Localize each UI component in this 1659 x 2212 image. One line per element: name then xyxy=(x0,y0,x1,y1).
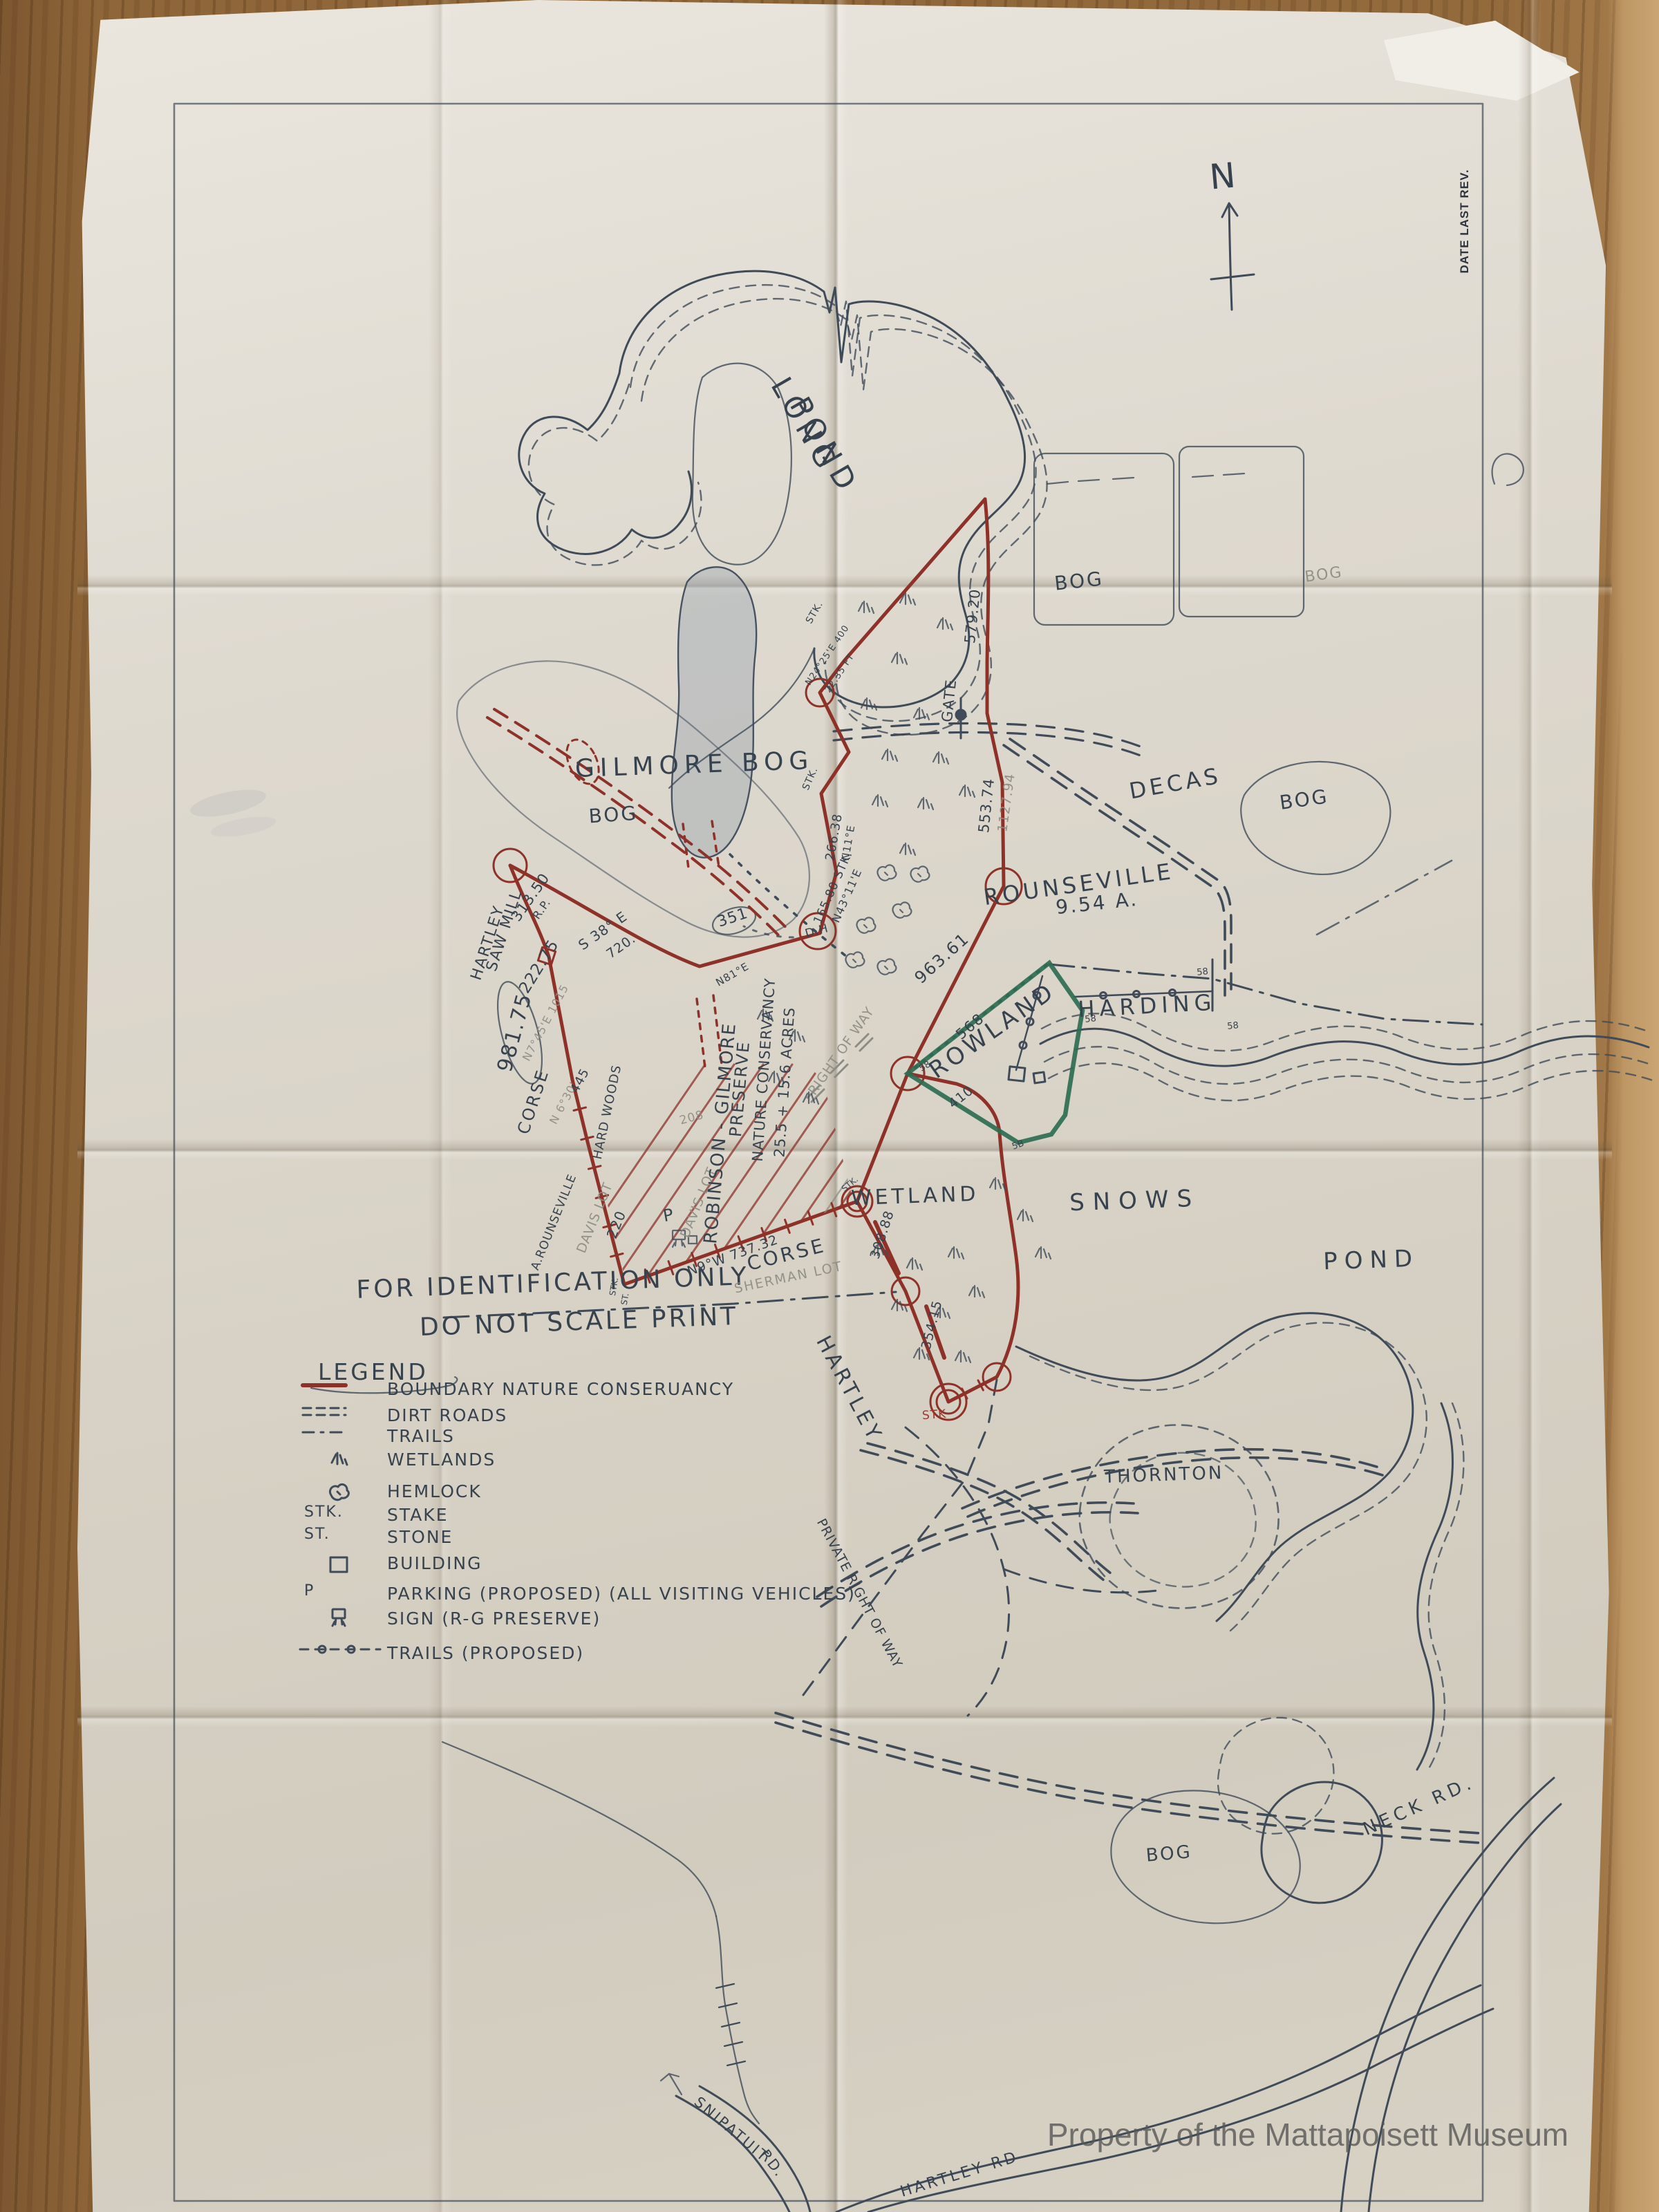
photo-of-map: { "colors":{"paper":"#ddd8cc","wood":"#8… xyxy=(0,0,1659,2212)
wetland-tuft-icon xyxy=(907,1258,922,1270)
hemlock-icon xyxy=(877,865,896,880)
legend-item-10: TRAILS (PROPOSED) xyxy=(386,1643,584,1663)
wetland-tuft-icon xyxy=(959,785,975,797)
map-label-d112794: 1127.94 xyxy=(995,772,1018,833)
map-label-north-n: N xyxy=(1208,156,1237,198)
map-label-date-rev: DATE LAST REV. xyxy=(1458,169,1471,274)
map-label-hartley-rd: HARTLEY RD xyxy=(899,2148,1021,2201)
wetland-tuft-icon xyxy=(990,1178,1005,1190)
map-label-no-scale: DO NOT SCALE PRINT xyxy=(419,1302,738,1342)
map-label-d58-1: 58 xyxy=(1197,966,1209,978)
map-label-acres: 25.5 + 15.6 ACRES xyxy=(771,1006,798,1158)
map-label-bog-decas: BOG xyxy=(1278,785,1330,814)
wetland-tuft-icon xyxy=(969,1286,984,1297)
map-label-pond-long: POND xyxy=(783,391,866,500)
wetland-tuft-icon xyxy=(1018,1210,1033,1221)
legend-item-1: DIRT ROADS xyxy=(387,1405,507,1425)
wetland-tuft-icon xyxy=(872,795,888,807)
legend-symbol-sign xyxy=(332,1609,345,1626)
legend-symbol-trailprop xyxy=(300,1646,380,1653)
map-label-snows: SNOWS xyxy=(1069,1185,1200,1217)
map-label-stk-1: STK. xyxy=(804,599,825,626)
wetland-tuft-icon xyxy=(948,1247,964,1259)
pencil-smudge xyxy=(188,785,268,823)
map-label-st-4: ST. xyxy=(619,1293,631,1306)
hand-drawn-map: FOR IDENTIFICATION ONLYDO NOT SCALE PRIN… xyxy=(0,0,1659,2212)
wetland-tuft-icon xyxy=(933,752,948,764)
hemlock-icon xyxy=(845,952,864,967)
map-label-pond-snows: POND xyxy=(1323,1245,1420,1276)
survey-tick xyxy=(588,1166,600,1169)
legend-symbol-square xyxy=(330,1557,347,1572)
map-label-d58-2: 58 xyxy=(1085,1013,1097,1025)
map-label-d57920: 579.20 xyxy=(962,588,984,644)
hemlock-icon xyxy=(892,902,911,917)
wetland-tuft-icon xyxy=(882,749,897,761)
map-label-harding: HARDING xyxy=(1078,989,1217,1022)
wetland-tuft-icon xyxy=(955,1351,971,1362)
wetland-tuft-icon xyxy=(892,1300,907,1311)
map-label-n81: N81°E xyxy=(713,960,751,989)
map-label-d96361: 963.61 xyxy=(911,929,973,988)
map-label-hardwoods: HARD WOODS xyxy=(590,1064,625,1161)
legend-symbol-hemlock xyxy=(330,1484,348,1499)
survey-tick xyxy=(611,1254,623,1257)
hemlock-icon xyxy=(856,917,875,932)
map-label-row-pencil: RIGHT OF WAY xyxy=(805,1004,877,1098)
legend-item-6: STONE xyxy=(387,1527,453,1547)
map-label-d58-3: 58 xyxy=(1227,1020,1239,1032)
wetland-tuft-icon xyxy=(892,653,907,664)
map-label-p-parking: P xyxy=(662,1205,675,1226)
legend-prefix-6: ST. xyxy=(304,1526,330,1543)
legend-prefix-5: STK. xyxy=(304,1503,344,1521)
map-label-bog-topright: BOG xyxy=(1053,567,1105,594)
map-label-arounseville: A.ROUNSEVILLE xyxy=(528,1172,579,1273)
legend-item-8: PARKING (PROPOSED) (ALL VISITING VEHICLE… xyxy=(387,1584,856,1604)
legend-item-9: SIGN (R-G PRESERVE) xyxy=(387,1609,601,1629)
map-label-bog-bottom: BOG xyxy=(1145,1841,1193,1866)
survey-tick xyxy=(574,1107,585,1110)
wetland-tuft-icon xyxy=(1035,1247,1051,1259)
ink-drawing-layer xyxy=(174,104,1657,2212)
map-label-corse-2: CORSE xyxy=(514,1067,553,1137)
hemlock-icon xyxy=(877,959,896,974)
map-labels: FOR IDENTIFICATION ONLYDO NOT SCALE PRIN… xyxy=(304,156,1568,2201)
map-label-hartley-vert: HARTLEY xyxy=(811,1332,887,1447)
hemlock-icon xyxy=(910,866,929,881)
map-label-dh: D.H xyxy=(804,921,830,941)
legend-item-5: STAKE xyxy=(387,1505,449,1525)
map-label-watermark: Property of the Mattapoisett Museum xyxy=(1047,2117,1568,2153)
legend-item-0: BOUNDARY NATURE CONSERUANCY xyxy=(387,1379,734,1399)
legend-symbol-dirt xyxy=(303,1408,346,1415)
map-label-d208: 208 xyxy=(678,1108,705,1127)
legend-prefix-8: P xyxy=(304,1582,315,1600)
wetland-tuft-icon xyxy=(859,601,874,613)
map-label-rowland: ROWLAND xyxy=(924,977,1061,1084)
map-label-wetland: WETLAND xyxy=(850,1182,980,1210)
map-label-gilmore-bog: GILMORE BOG xyxy=(574,747,814,783)
wetland-tuft-icon xyxy=(861,698,877,710)
wetland-tuft-icon xyxy=(937,618,953,630)
map-label-thornton: THORNTON xyxy=(1103,1463,1224,1488)
pencil-smudge-2 xyxy=(209,813,278,841)
map-label-bog-gilmore-sw: BOG xyxy=(588,802,639,828)
wetland-tuft-icon xyxy=(918,798,933,809)
survey-tick xyxy=(581,1136,593,1139)
legend-item-7: BUILDING xyxy=(387,1553,482,1573)
map-label-d30888: 308.88 xyxy=(868,1208,897,1261)
map-label-stk-red: STK xyxy=(921,1407,947,1423)
map-label-decas: DECAS xyxy=(1127,762,1224,805)
gilmore-pond-finger xyxy=(672,567,756,857)
legend-symbol-tuft xyxy=(332,1453,347,1465)
legend-item-3: WETLANDS xyxy=(387,1450,496,1470)
legend-item-2: TRAILS xyxy=(386,1426,455,1446)
legend-item-4: HEMLOCK xyxy=(387,1481,482,1501)
wetland-tuft-icon xyxy=(900,843,915,855)
map-label-d55374: 553.74 xyxy=(975,777,997,834)
map-label-bog-pencil: BOG xyxy=(1304,563,1344,585)
